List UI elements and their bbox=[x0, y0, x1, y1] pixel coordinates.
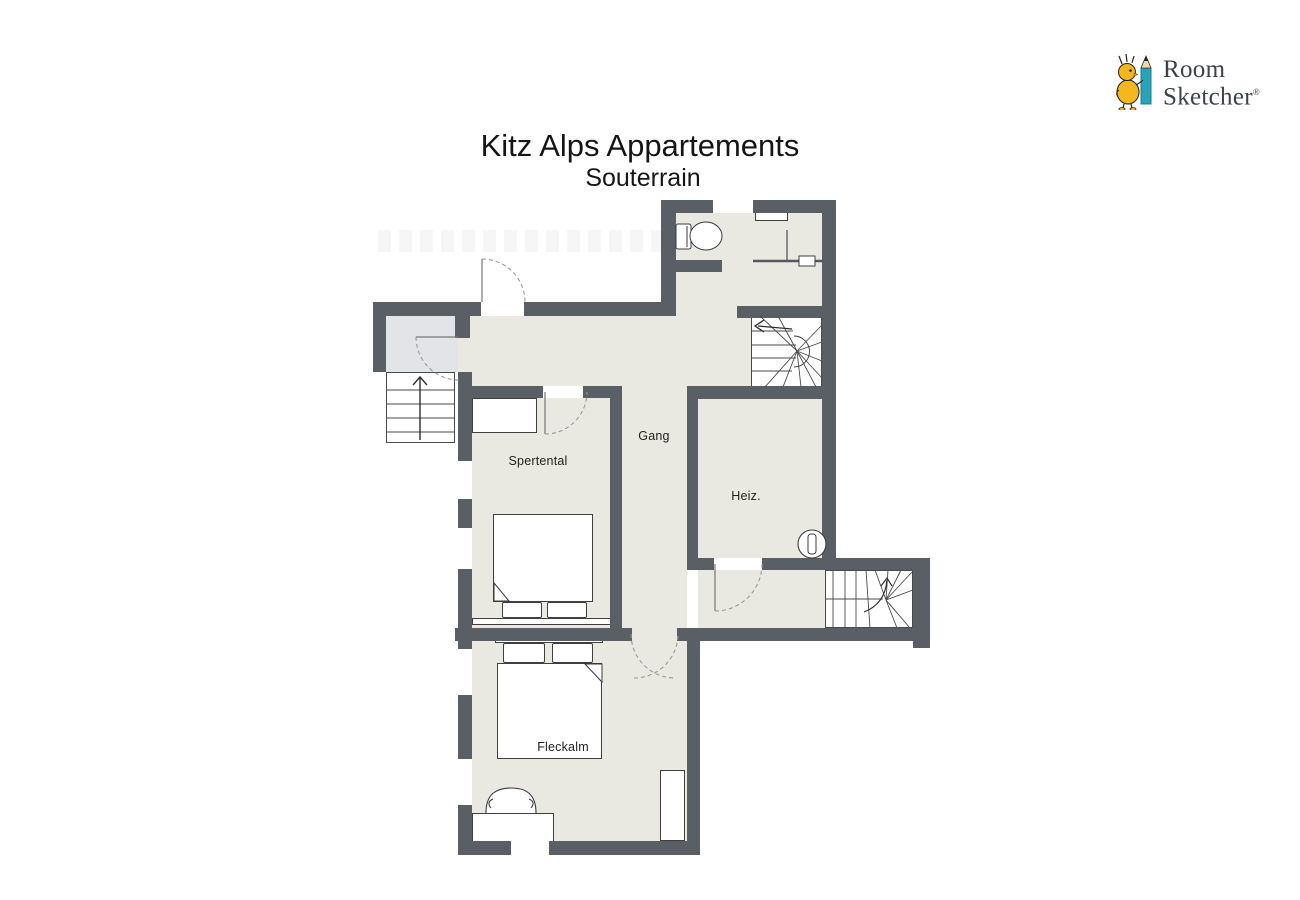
window bbox=[458, 648, 472, 696]
floor-passage-lower bbox=[698, 570, 827, 628]
shelf bbox=[755, 212, 788, 221]
window bbox=[458, 527, 472, 570]
wall bbox=[661, 200, 676, 312]
window bbox=[510, 841, 550, 855]
bed-frame-spertental bbox=[472, 618, 612, 625]
door-opening bbox=[714, 558, 762, 570]
window bbox=[458, 758, 472, 806]
floor-heiz bbox=[698, 398, 823, 570]
wall bbox=[373, 302, 676, 316]
wall bbox=[676, 260, 722, 272]
spiral-staircase bbox=[751, 316, 822, 387]
bed-mattress-spertental bbox=[493, 514, 593, 602]
door-opening bbox=[481, 302, 524, 316]
plan-subtitle: Souterrain bbox=[585, 164, 700, 193]
pillow bbox=[552, 643, 593, 663]
floorplan-page: Room Sketcher® Kitz Alps Appartements So… bbox=[0, 0, 1300, 900]
room-label-gang: Gang bbox=[638, 429, 669, 443]
wall bbox=[458, 372, 472, 628]
wall bbox=[373, 302, 386, 372]
door-opening bbox=[543, 386, 583, 398]
wall bbox=[687, 628, 700, 855]
roomsketcher-mascot-icon bbox=[1114, 52, 1158, 110]
window bbox=[458, 460, 472, 500]
pillow bbox=[502, 602, 542, 618]
wall bbox=[677, 628, 930, 641]
straight-staircase bbox=[386, 372, 455, 443]
closet bbox=[660, 770, 685, 841]
wall bbox=[610, 398, 622, 628]
wall bbox=[455, 628, 632, 641]
brand-line1: Room bbox=[1163, 58, 1260, 81]
brand-text: Room Sketcher® bbox=[1163, 58, 1260, 108]
room-label-fleckalm: Fleckalm bbox=[537, 740, 589, 754]
brand-line2: Sketcher® bbox=[1163, 81, 1260, 108]
room-label-spertental: Spertental bbox=[509, 454, 568, 468]
wall bbox=[822, 200, 836, 570]
plan-title: Kitz Alps Appartements bbox=[481, 128, 800, 164]
floor-vestibule bbox=[386, 316, 458, 372]
room-label-heiz: Heiz. bbox=[731, 489, 760, 503]
wardrobe bbox=[472, 398, 537, 433]
pencil-icon bbox=[1141, 68, 1151, 104]
roomsketcher-logo: Room Sketcher® bbox=[1114, 52, 1260, 110]
faint-marks bbox=[378, 230, 663, 252]
door-swing-icon bbox=[482, 259, 525, 302]
wall bbox=[455, 316, 470, 338]
registered-mark: ® bbox=[1253, 87, 1260, 97]
wall bbox=[458, 841, 700, 855]
pillow bbox=[547, 602, 587, 618]
pillow bbox=[503, 643, 545, 663]
wall bbox=[737, 306, 836, 318]
winder-staircase bbox=[825, 570, 913, 628]
wall bbox=[687, 386, 836, 399]
wall bbox=[687, 386, 698, 562]
door-opening bbox=[713, 200, 753, 213]
